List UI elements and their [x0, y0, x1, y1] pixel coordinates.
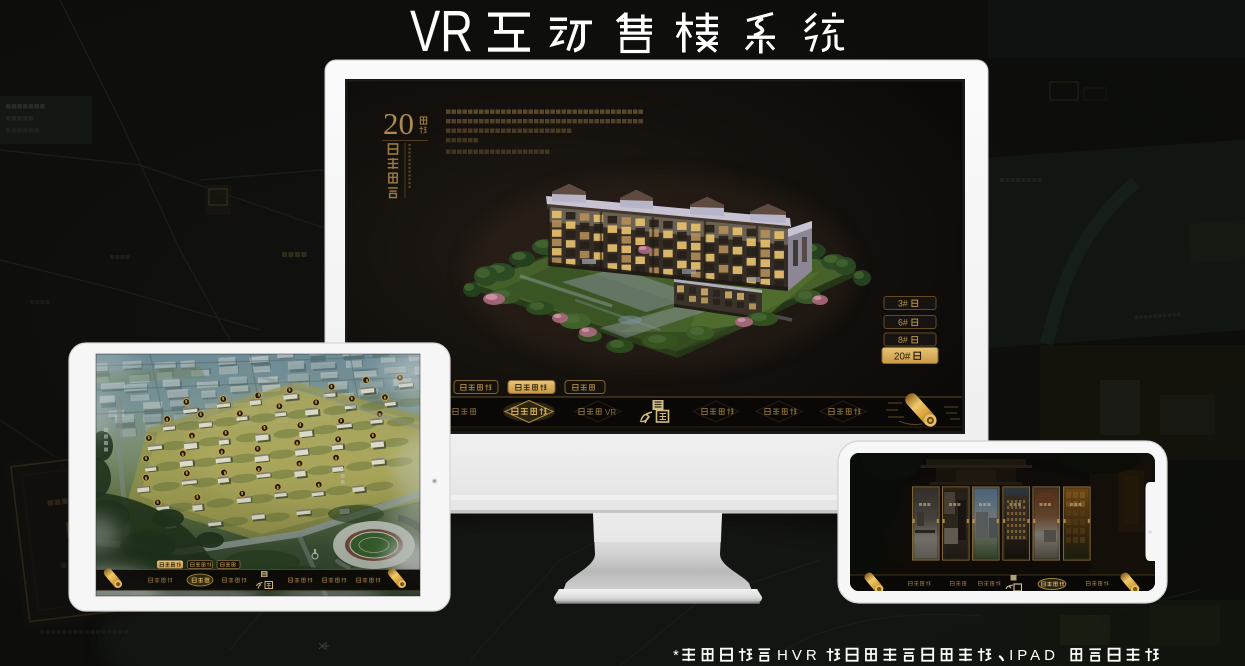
- svg-text:20: 20: [383, 106, 414, 141]
- svg-text:VR: VR: [410, 0, 473, 64]
- svg-text:20#: 20#: [894, 352, 911, 363]
- svg-text:*: *: [673, 647, 679, 664]
- svg-text:8#: 8#: [898, 335, 908, 345]
- svg-text:VR: VR: [605, 408, 616, 417]
- svg-text:6#: 6#: [898, 318, 908, 328]
- svg-text:IPAD: IPAD: [1009, 647, 1059, 664]
- svg-text:3#: 3#: [898, 299, 908, 309]
- svg-text:HVR: HVR: [777, 647, 821, 664]
